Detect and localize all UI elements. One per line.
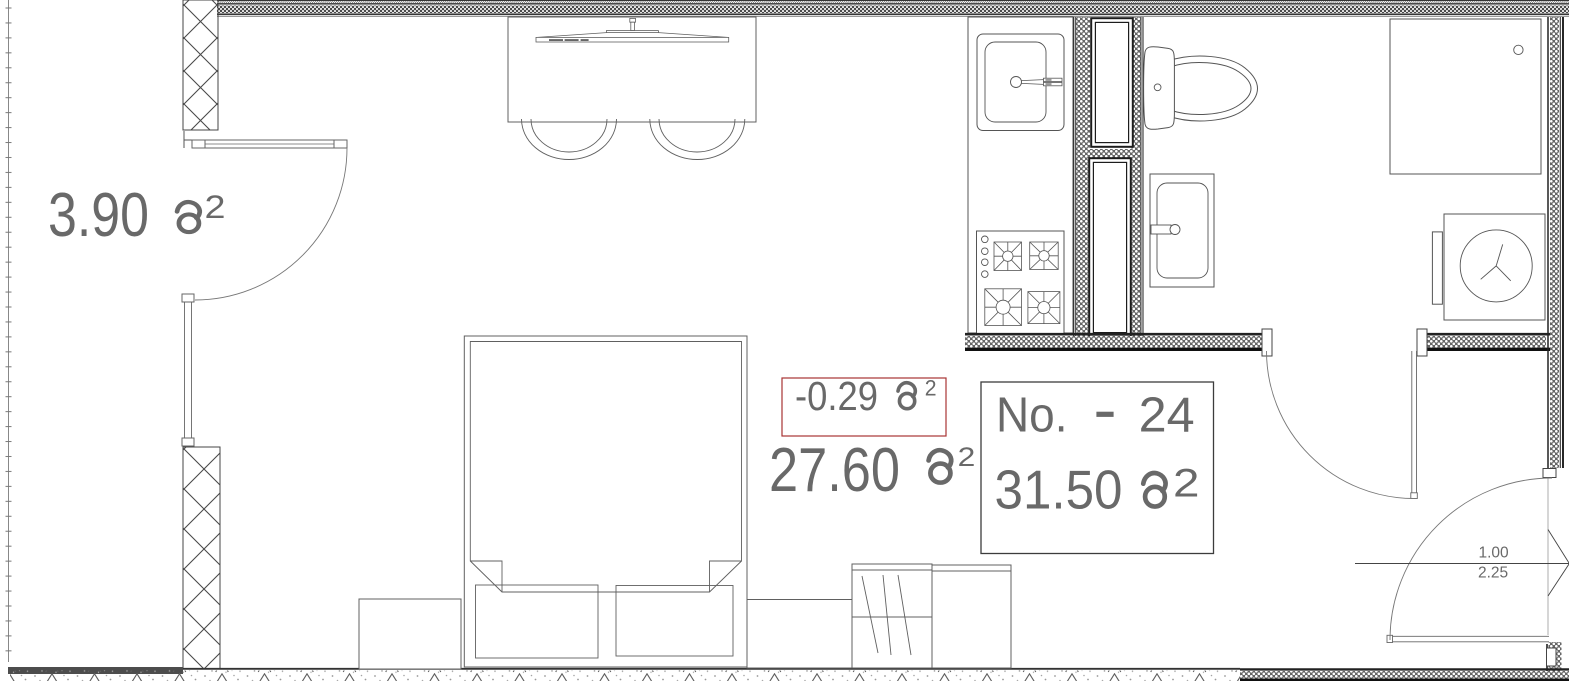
- svg-text:2: 2: [925, 375, 937, 400]
- svg-text:27.60: 27.60: [769, 436, 900, 505]
- svg-text:2: 2: [205, 189, 226, 225]
- svg-text:2: 2: [1173, 461, 1200, 505]
- svg-text:-0.29: -0.29: [795, 373, 878, 419]
- svg-text:2.25: 2.25: [1478, 564, 1508, 581]
- svg-text:3.90: 3.90: [48, 181, 149, 250]
- svg-text:No.: No.: [996, 388, 1068, 443]
- svg-text:1.00: 1.00: [1479, 545, 1510, 562]
- svg-text:24: 24: [1139, 388, 1195, 443]
- svg-text:2: 2: [958, 442, 976, 472]
- svg-text:31.50: 31.50: [995, 459, 1123, 521]
